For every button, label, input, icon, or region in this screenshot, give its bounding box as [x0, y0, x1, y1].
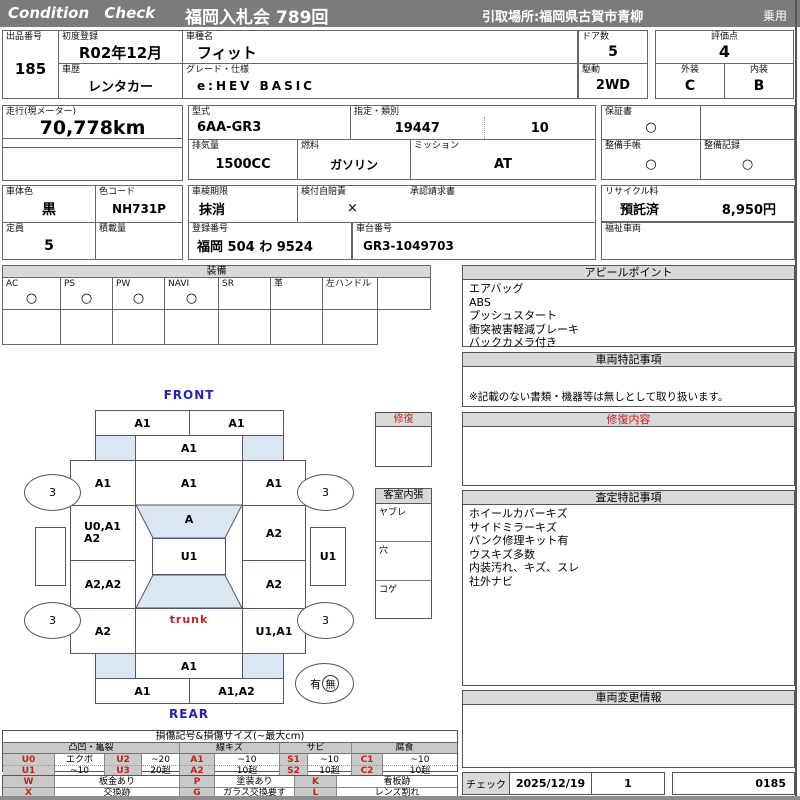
panel-rocker-left [35, 527, 66, 586]
panel-door-rear-right: A2 [242, 560, 306, 609]
legend-desc: 塗装あり [215, 776, 295, 787]
score-cell: 評価点 4 [655, 30, 794, 64]
fuel-cell: 燃料 ガソリン [297, 139, 411, 180]
tire-rear-left: 3 [24, 602, 81, 639]
registration-number-cell: 登録番号 福岡 504 わ 9524 [188, 222, 352, 260]
legend-size: ~10 [308, 754, 352, 765]
maintenance-record-cell: 整備記録 ○ [700, 139, 795, 180]
panel-front-bumper-left: A1 [95, 410, 190, 436]
panel-hatch: A1 [135, 653, 243, 679]
recycle-status: 預託済 [620, 199, 659, 218]
legend-group: 凸凹・亀裂 [3, 743, 180, 754]
auction-condition-sheet: Condition Check 福岡入札会 789回 引取場所:福岡県古賀市青柳… [0, 0, 800, 800]
panel-hood-corner-right [242, 435, 284, 461]
sheet-number: 0185 [673, 773, 794, 794]
legend-group: 腐食 [352, 743, 457, 754]
panel-windshield: A1 [135, 460, 243, 506]
equipment-cell-pw: PW ○ [112, 277, 165, 310]
class-number-2: 10 [485, 121, 595, 136]
panel-rear-bumper-left: A1 [95, 678, 190, 704]
right-edge-line [795, 0, 797, 800]
equipment-row2-cell [270, 309, 323, 345]
vehicle-note: ※記載のない書類・機器等は無しとして取り扱います。 [469, 391, 788, 405]
legend-code: S1 [280, 754, 308, 765]
appeal-line: プッシュスタート [469, 309, 788, 323]
repair-content-body [463, 427, 794, 485]
legend-size: ~20 [142, 754, 180, 765]
insurance-cell: 検付自賠責 × [297, 185, 408, 223]
cabin-interior-box: 客室内張 ヤブレ 穴 コゲ [375, 488, 432, 619]
equipment-row2-cell [112, 309, 165, 345]
panel-roof: A [135, 513, 243, 526]
color-code-cell: 色コード NH731P [95, 185, 183, 223]
warranty-empty-cell [700, 105, 795, 140]
vehicle-notes-panel: 車両特記事項 ※記載のない書類・機器等は無しとして取り扱います。 [462, 352, 795, 407]
inspection-cell: 車検期限 抹消 [188, 185, 298, 223]
change-info-panel: 車両変更情報 [462, 690, 795, 768]
panel-door-front-right: A2 [242, 505, 306, 561]
rear-label: REAR [135, 707, 243, 721]
legend-desc: 板金あり [55, 776, 180, 787]
check-date: 2025/12/19 [510, 773, 592, 794]
appeal-line: 衝突被害軽減ブレーキ [469, 323, 788, 337]
appeal-line: エアバッグ [469, 282, 788, 296]
equipment-cell-sr: SR [218, 277, 271, 310]
chassis-number-cell: 車台番号 GR3-1049703 [352, 222, 596, 260]
transmission-cell: ミッション AT [410, 139, 596, 180]
welfare-vehicle-cell: 福祉車両 [601, 222, 795, 260]
equipment-cell-ps: PS ○ [60, 277, 113, 310]
model-name-cell: 車種名 フィット [182, 30, 578, 64]
equipment-cell-left-handle: 左ハンドル [322, 277, 378, 310]
brand-logo: Condition Check [8, 4, 155, 22]
equipment-cell-extra [377, 277, 431, 310]
tire-front-left: 3 [24, 474, 81, 511]
spare-yes-label: 有 [310, 676, 321, 692]
legend-desc: 看板跡 [337, 776, 457, 787]
sheet-number-box: 0185 [672, 772, 795, 795]
warranty-cell: 保証書 ○ [601, 105, 701, 140]
front-label: FRONT [135, 388, 243, 402]
exterior-grade-cell: 外装 C [655, 63, 725, 99]
assessment-line: ウスキズ多数 [469, 548, 788, 562]
assessment-line: 内装汚れ、キズ、スレ [469, 561, 788, 575]
capacity-cell: 定員 5 [2, 222, 96, 260]
assessment-line: 社外ナビ [469, 575, 788, 589]
bottom-edge-line [0, 796, 800, 800]
assessment-line: パンク修理キット有 [469, 534, 788, 548]
legend-code: W [3, 776, 55, 787]
assessment-notes-panel: 査定特記事項 ホイールカバーキズ サイドミラーキズ パンク修理キット有 ウスキズ… [462, 490, 795, 686]
displacement-cell: 排気量 1500CC [188, 139, 298, 180]
legend-code: U2 [105, 754, 142, 765]
equipment-cell-navi: NAVI ○ [164, 277, 219, 310]
mileage-cell: 走行(現メーター) 70,778km [2, 105, 183, 139]
assessment-line: サイドミラーキズ [469, 521, 788, 535]
pickup-location: 引取場所:福岡県古賀市青柳 [482, 6, 643, 25]
panel-hatch-corner-left [95, 653, 136, 679]
legend-code: U0 [3, 754, 55, 765]
mileage-empty-row [2, 147, 183, 181]
equipment-row2-cell [2, 309, 61, 345]
spare-tire-indicator: 有 無 [295, 663, 354, 704]
assessment-line: ホイールカバーキズ [469, 507, 788, 521]
drive-cell: 駆動 2WD [578, 63, 648, 99]
grade-cell: グレード・仕様 e:HEV BASIC [182, 63, 578, 99]
panel-fender-front-right: A1 [242, 460, 306, 506]
check-row: チェック 2025/12/19 1 [462, 772, 665, 795]
cabin-row-tear: ヤブレ [376, 504, 431, 542]
class-number-cell: 指定・類別 19447 10 [350, 105, 596, 140]
damage-legend-table: 損傷記号&損傷サイズ(~最大cm) 凸凹・亀裂 線キズ サビ 腐食 U0 エクボ… [2, 730, 458, 772]
panel-trunk: trunk [135, 608, 243, 654]
legend-size: エクボ [55, 754, 105, 765]
repair-content-panel: 修復内容 [462, 412, 795, 486]
equipment-row2-cell [322, 309, 378, 345]
legend-code: P [180, 776, 215, 787]
tire-front-right: 3 [297, 474, 354, 511]
panel-door-front-left: U0,A1 A2 [70, 505, 136, 561]
header-bar: Condition Check 福岡入札会 789回 引取場所:福岡県古賀市青柳… [0, 0, 800, 27]
spare-no-label: 無 [322, 675, 339, 692]
interior-grade-cell: 内装 B [724, 63, 794, 99]
approval-cell: 承認請求書 [407, 185, 596, 223]
legend-group: 線キズ [180, 743, 280, 754]
panel-hatch-corner-right [242, 653, 284, 679]
legend-code: A1 [180, 754, 215, 765]
panel-fender-front-left: A1 [70, 460, 136, 506]
first-registration-cell: 初度登録 R02年12月 [58, 30, 183, 64]
check-label: チェック [463, 773, 510, 794]
legend-size: ~10 [383, 754, 457, 765]
recycle-fee-cell: リサイクル料 預託済 8,950円 [601, 185, 795, 222]
panel-front-bumper-right: A1 [189, 410, 284, 436]
exhibit-number-cell: 出品番号 185 [2, 30, 59, 99]
panel-hood: A1 [135, 435, 243, 461]
repair-mini-body [376, 427, 431, 466]
tire-rear-right: 3 [297, 602, 354, 639]
panel-rear-bumper-right: A1,A2 [189, 678, 284, 704]
cabin-row-burn: コゲ [376, 581, 431, 618]
vehicle-class: 乗用 [763, 7, 787, 24]
repair-legend-table: W 板金あり P 塗装あり K 看板跡 X 交換跡 G ガラス交換要す L レン… [2, 775, 458, 798]
appeal-line: ABS [469, 296, 788, 310]
legend-size: ~10 [215, 754, 280, 765]
panel-rocker-right: U1 [310, 527, 346, 586]
maintenance-book-cell: 整備手帳 ○ [601, 139, 701, 180]
panel-center: U1 [152, 538, 226, 575]
cabin-row-hole: 穴 [376, 542, 431, 580]
panel-door-rear-left: A2,A2 [70, 560, 136, 609]
legend-code: C1 [352, 754, 383, 765]
panel-hood-corner-left [95, 435, 136, 461]
model-code-cell: 型式 6AA-GR3 [188, 105, 351, 140]
legend-code: K [295, 776, 337, 787]
equipment-row2-cell [218, 309, 271, 345]
recycle-fee: 8,950円 [722, 199, 776, 218]
appeal-points-panel: アピールポイント エアバッグ ABS プッシュスタート 衝突被害軽減ブレーキ バ… [462, 265, 795, 347]
panel-fender-rear-right: U1,A1 [242, 608, 306, 654]
auction-title: 福岡入札会 789回 [185, 3, 328, 28]
repair-mini-box: 修復 [375, 412, 432, 467]
legend-group: サビ [280, 743, 352, 754]
check-count: 1 [592, 773, 664, 794]
doors-cell: ドア数 5 [578, 30, 648, 64]
change-info-body [463, 705, 794, 767]
appeal-line: バックカメラ付き [469, 336, 788, 350]
equipment-row2-cell [60, 309, 113, 345]
load-capacity-cell: 積載量 [95, 222, 183, 260]
body-color-cell: 車体色 黒 [2, 185, 96, 223]
class-number-1: 19447 [351, 121, 484, 136]
equipment-cell-leather: 革 [270, 277, 323, 310]
history-cell: 車歴 レンタカー [58, 63, 183, 99]
equipment-cell-ac: AC ○ [2, 277, 61, 310]
equipment-row2-cell [164, 309, 219, 345]
